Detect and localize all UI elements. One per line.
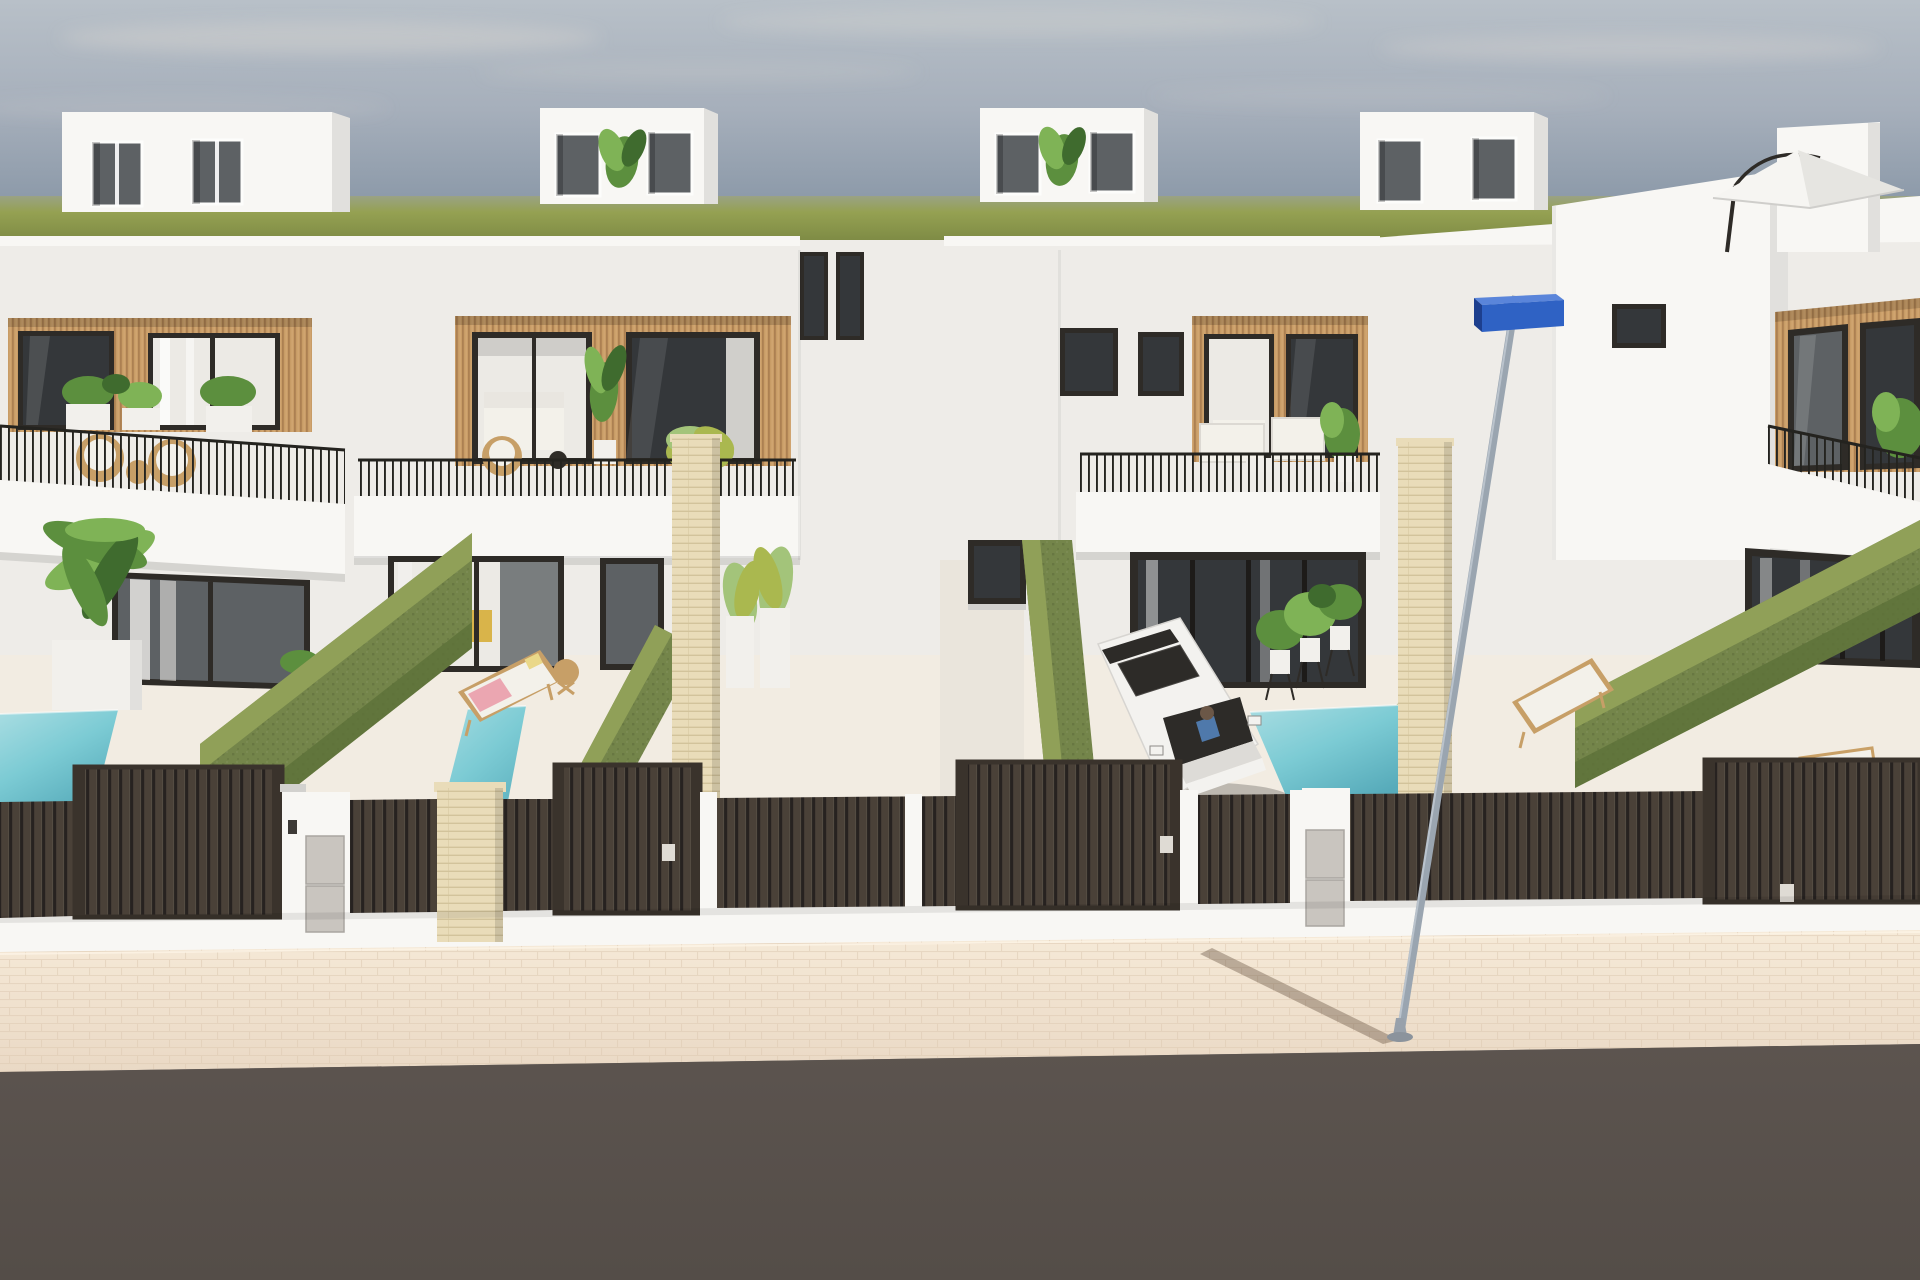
house-number-plaque: [662, 844, 675, 861]
bulkhead-window: [1090, 132, 1134, 192]
roof-parapet: [444, 236, 800, 246]
balcony-railing: [358, 460, 796, 496]
bulkhead-window: [92, 142, 142, 206]
link-window-glass: [840, 256, 860, 336]
facade-shadow: [1192, 316, 1368, 325]
balcony-parapet: [354, 496, 800, 558]
bulkhead-side-face: [704, 108, 718, 204]
tall-side-volume: [1552, 172, 1770, 560]
entrance-gate: [555, 765, 700, 913]
fence-pillar: [700, 792, 717, 928]
bulkhead-window: [648, 132, 692, 194]
transom-window: [1060, 328, 1118, 396]
bulkhead-side-face: [332, 112, 350, 212]
bulkhead-window: [996, 134, 1040, 194]
wall-seam: [1552, 206, 1556, 560]
roof-parapet: [0, 236, 444, 246]
lamp-pole-base: [1387, 1032, 1413, 1042]
bulkhead-window: [556, 134, 600, 196]
slat-fence-panel: [1348, 791, 1705, 901]
bulkhead-window: [1472, 138, 1516, 200]
facade-shadow: [455, 316, 791, 325]
driveway-gate: [958, 762, 1180, 908]
entrance-gate: [75, 767, 282, 917]
bulkhead-side-face: [1534, 112, 1548, 210]
slat-fence-panel: [502, 799, 555, 911]
utility-meter-boxes: [1306, 830, 1344, 926]
slat-fence-panel: [1196, 794, 1290, 904]
bulkhead-side-face: [1144, 108, 1158, 202]
road: [0, 1044, 1920, 1280]
slat-fence-panel: [348, 799, 437, 913]
roof-parapet: [944, 236, 1380, 246]
bulkhead-window: [1378, 140, 1422, 202]
bulkhead-window: [192, 140, 242, 204]
transom-window: [1138, 332, 1184, 396]
car-mirror: [1248, 716, 1261, 725]
render-image: [0, 0, 1920, 1280]
slat-fence-panel: [0, 801, 75, 918]
house-number-plaque: [1160, 836, 1173, 853]
street-sign: [1474, 294, 1564, 332]
entry-door: [968, 540, 1026, 610]
fence-pillar-cap: [280, 784, 306, 792]
wall-seam: [1058, 250, 1061, 560]
balcony-parapet: [1076, 492, 1380, 552]
balcony-railing: [1080, 454, 1380, 492]
entrance-gate: [1705, 760, 1920, 902]
link-window-glass: [804, 256, 824, 336]
white-planter: [52, 640, 142, 710]
wall-seam: [798, 250, 801, 560]
villa-street-render: [0, 0, 1920, 1280]
car-mirror: [1150, 746, 1163, 755]
travertine-pillar: [670, 434, 722, 810]
side-window: [1612, 304, 1666, 348]
facade-shadow: [8, 318, 312, 327]
gate-keypad: [288, 820, 297, 834]
